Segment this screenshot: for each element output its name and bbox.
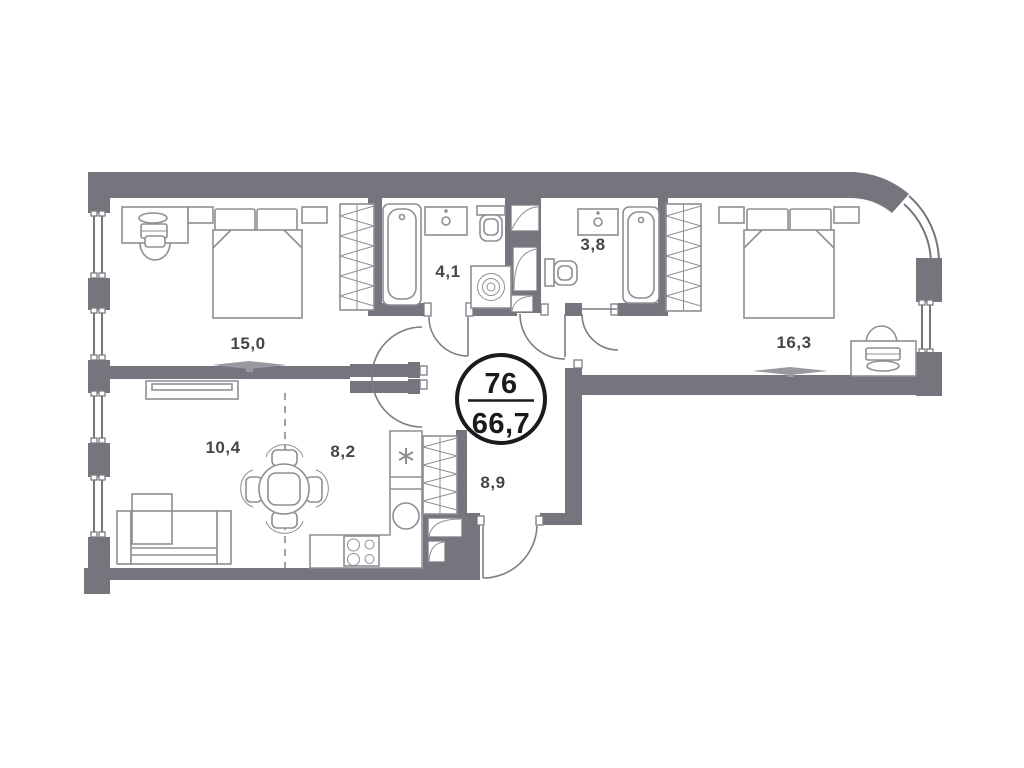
unit-number: 76 (484, 368, 517, 400)
sink-icon (425, 207, 467, 235)
unit-total-area: 66,7 (472, 408, 530, 440)
washing-machine-icon (471, 266, 511, 308)
tv-icon (752, 367, 828, 375)
unit-badge: 76 66,7 (457, 355, 545, 443)
sofa-icon (117, 494, 231, 564)
nightstand-icon (719, 207, 744, 223)
sink-icon (578, 209, 618, 235)
room-area-label-kitchen: 8,2 (330, 442, 355, 461)
wardrobe-icon (666, 204, 701, 311)
living-room-furniture (117, 381, 328, 568)
floor-plan-page: 15,0 4,1 3,8 16,3 10,4 8,2 8,9 76 66,7 (0, 0, 1024, 768)
kitchen-furniture (310, 431, 422, 568)
room-area-label-living-room: 10,4 (205, 438, 240, 457)
bathroom-right-fixtures (545, 207, 659, 303)
bathtub-icon (383, 204, 421, 305)
wardrobe-icon (340, 204, 374, 310)
bed-icon (744, 209, 834, 318)
room-area-label-bathroom-left: 4,1 (435, 262, 460, 281)
toilet-icon (545, 259, 577, 286)
toilet-icon (477, 206, 505, 241)
bed-icon (213, 209, 302, 318)
nightstand-icon (302, 207, 327, 223)
nightstand-icon (834, 207, 859, 223)
nightstand-icon (188, 207, 213, 223)
bathtub-icon (623, 207, 659, 303)
floor-plan-canvas: 15,0 4,1 3,8 16,3 10,4 8,2 8,9 76 66,7 (0, 0, 1024, 768)
room-area-label-bathroom-right: 3,8 (580, 235, 605, 254)
room-area-label-hallway: 8,9 (480, 473, 505, 492)
room-area-label-bedroom-left: 15,0 (230, 334, 265, 353)
stove-icon (344, 536, 379, 566)
dining-table-icon (241, 445, 329, 534)
room-area-label-bedroom-right: 16,3 (776, 333, 811, 352)
bathroom-left-fixtures (383, 204, 511, 308)
wardrobe-icon (423, 436, 457, 514)
hallway-furniture (423, 436, 457, 514)
